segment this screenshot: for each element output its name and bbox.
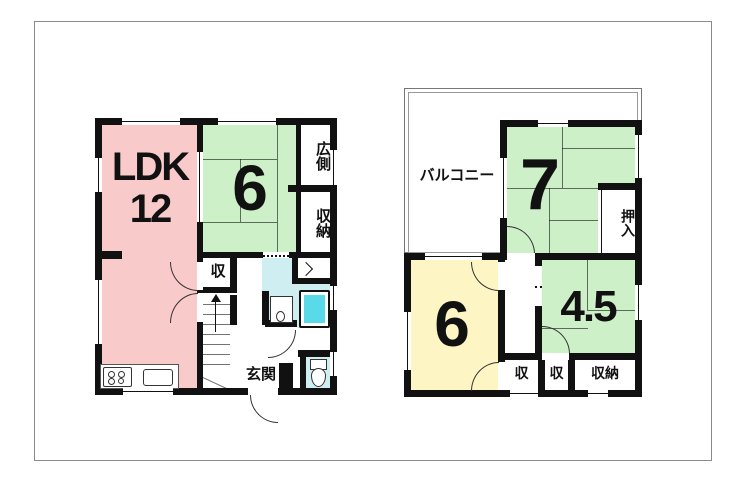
floor1-plan: LDK 12 6 広側 収納 収 玄関 xyxy=(95,118,337,395)
room-label-shu: 収 xyxy=(206,264,230,280)
room-label-shunou: 収納 xyxy=(301,202,330,244)
room-label-shu-b: 収 xyxy=(545,366,568,381)
wall xyxy=(598,183,642,190)
wall xyxy=(203,287,237,293)
oshiire-sliding-door xyxy=(598,190,605,253)
wall xyxy=(538,360,545,390)
room-label-shu-a: 収 xyxy=(505,366,538,381)
ldk-line2: 12 xyxy=(130,187,171,231)
window xyxy=(404,312,411,370)
stairs-icon xyxy=(203,314,230,315)
washbasin-bowl-icon xyxy=(276,311,285,322)
sink-icon xyxy=(143,369,173,386)
window xyxy=(425,253,482,260)
wall xyxy=(635,253,642,397)
window xyxy=(588,390,608,397)
door-opening xyxy=(507,253,535,260)
wall xyxy=(505,353,642,360)
wall xyxy=(500,120,642,127)
wall xyxy=(262,291,269,325)
room-label-tatami6: 6 xyxy=(220,140,280,236)
stairs-icon xyxy=(203,344,230,345)
bathtub-icon xyxy=(299,290,330,328)
wall xyxy=(279,363,293,388)
room-label-shunou2: 収納 xyxy=(575,366,635,381)
wall xyxy=(95,251,122,259)
window xyxy=(122,118,180,125)
stairs-up-arrow xyxy=(215,300,216,332)
stairs-icon xyxy=(203,324,230,325)
window xyxy=(330,352,337,376)
room-label-genkan: 玄関 xyxy=(243,367,279,383)
room-label-hiroen: 広側 xyxy=(301,135,330,177)
wall xyxy=(288,185,337,192)
tatami-line xyxy=(562,148,635,149)
stairs-up-arrow-head xyxy=(211,294,221,302)
stairs-icon xyxy=(203,354,230,355)
window xyxy=(330,150,337,185)
room-label-ldk: LDK 12 xyxy=(101,146,199,230)
window xyxy=(95,280,102,344)
stairs-icon xyxy=(203,334,230,335)
door-opening xyxy=(498,262,505,290)
door-swing-icon xyxy=(268,330,296,358)
stove-icon xyxy=(103,367,132,387)
balcony-sliding-door xyxy=(500,158,507,218)
window xyxy=(510,390,538,397)
folding-door-icon xyxy=(299,262,313,276)
entrance-opening xyxy=(248,388,278,395)
door-opening xyxy=(498,362,505,390)
room-label-room6: 6 xyxy=(422,280,482,368)
door-opening xyxy=(542,353,569,360)
wall xyxy=(230,295,237,325)
stairs-icon xyxy=(203,304,230,305)
window xyxy=(538,120,568,127)
window xyxy=(330,286,337,310)
room-label-tatami45: 4.5 xyxy=(550,276,626,338)
room-label-balcony: バルコニー xyxy=(414,168,500,184)
window xyxy=(635,135,642,178)
stairs-icon xyxy=(203,364,230,365)
wall xyxy=(568,360,575,390)
window xyxy=(635,285,642,320)
room-label-tatami7: 7 xyxy=(510,140,570,230)
accordion-door xyxy=(535,266,542,306)
floor-plan-canvas: LDK 12 6 広側 収納 収 玄関 バルコニー 押入 xyxy=(0,0,740,483)
room-label-oshiire: 押入 xyxy=(607,200,635,246)
window xyxy=(123,388,173,395)
floor2-plan: バルコニー 押入 xyxy=(404,88,642,397)
ldk-line1: LDK xyxy=(112,145,188,189)
window xyxy=(218,118,276,125)
